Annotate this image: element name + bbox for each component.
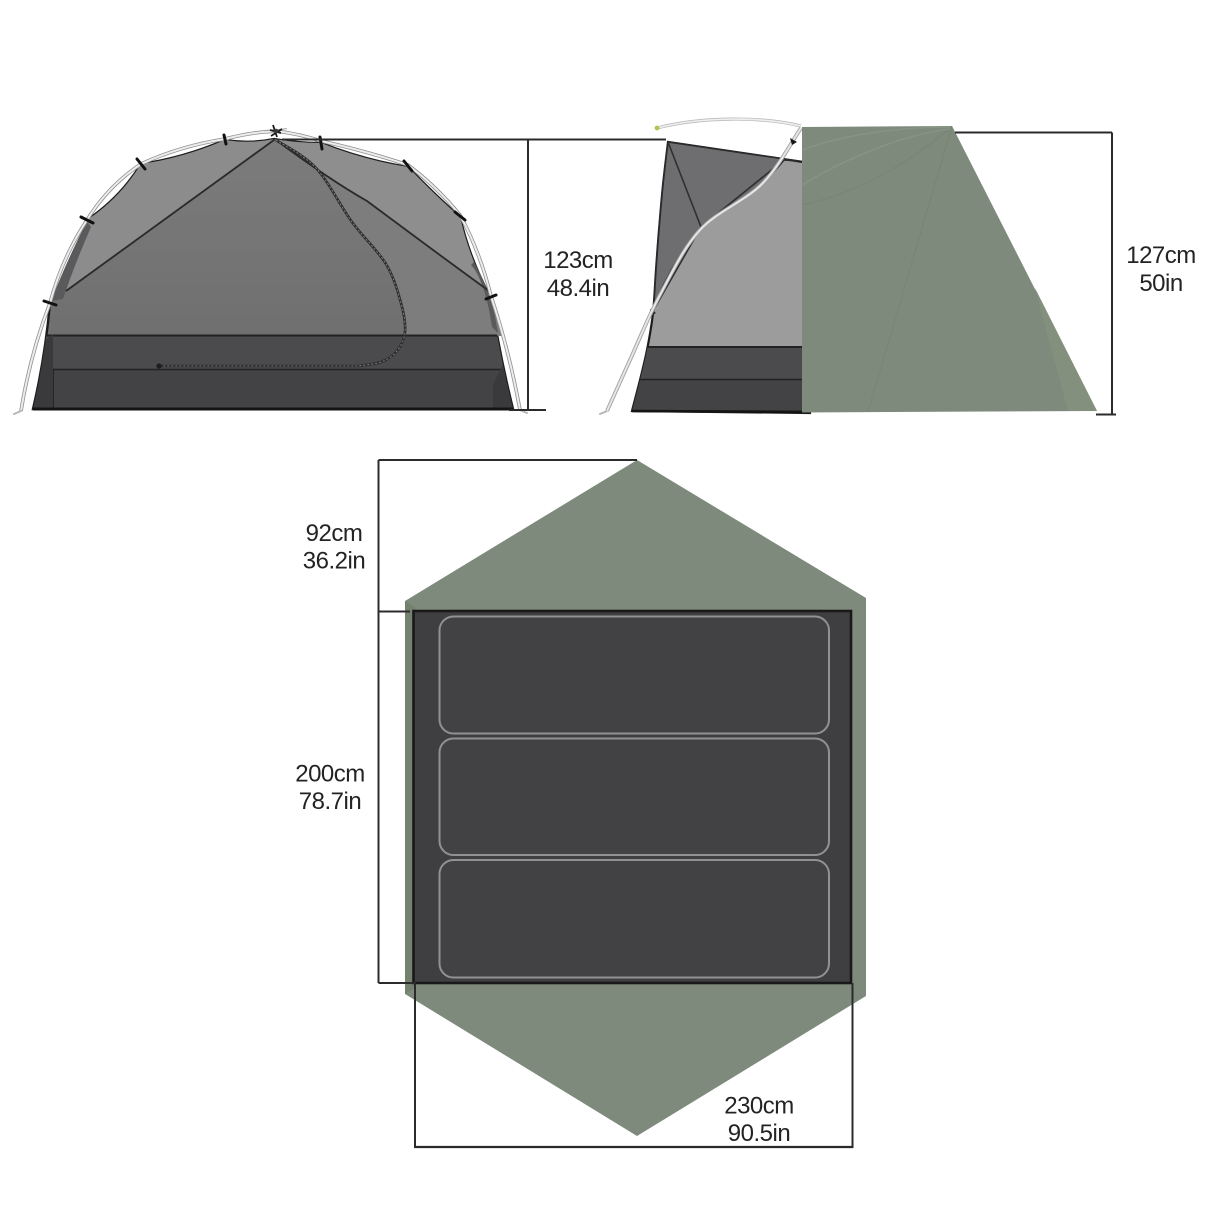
svg-text:230cm: 230cm bbox=[724, 1093, 794, 1120]
svg-text:78.7in: 78.7in bbox=[299, 788, 361, 815]
svg-text:127cm: 127cm bbox=[1126, 242, 1196, 269]
svg-text:90.5in: 90.5in bbox=[728, 1120, 790, 1147]
svg-text:48.4in: 48.4in bbox=[547, 275, 609, 302]
svg-text:36.2in: 36.2in bbox=[303, 548, 365, 575]
svg-text:50in: 50in bbox=[1139, 270, 1182, 297]
svg-text:123cm: 123cm bbox=[543, 247, 613, 274]
svg-text:92cm: 92cm bbox=[306, 520, 363, 547]
svg-text:200cm: 200cm bbox=[295, 761, 365, 788]
